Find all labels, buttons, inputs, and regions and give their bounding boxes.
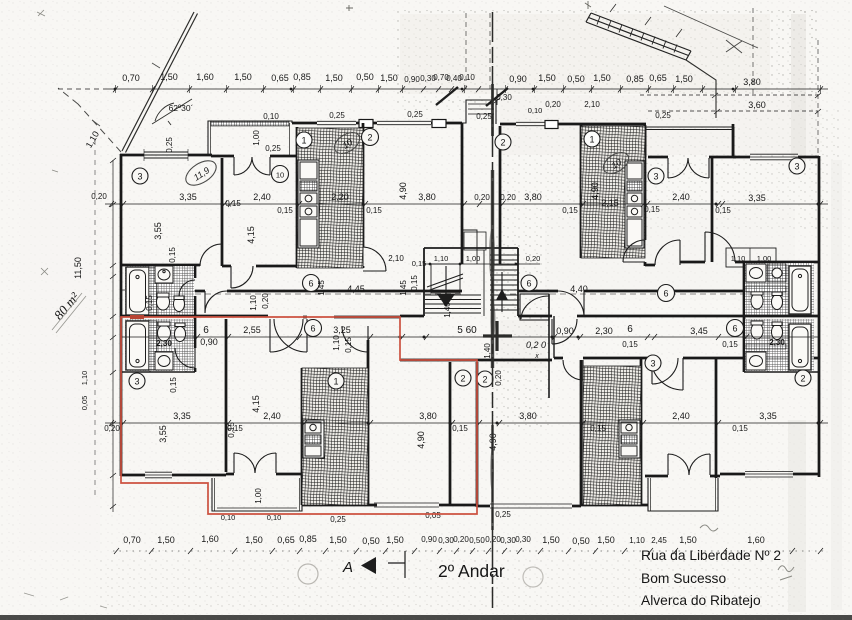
svg-text:2,10: 2,10 xyxy=(388,254,404,263)
svg-text:2,40: 2,40 xyxy=(672,192,690,202)
svg-text:1,10: 1,10 xyxy=(731,254,746,263)
svg-text:0,10: 0,10 xyxy=(528,106,543,115)
svg-text:2,30: 2,30 xyxy=(156,339,172,348)
svg-text:1,45: 1,45 xyxy=(399,280,408,296)
svg-text:3: 3 xyxy=(650,359,655,369)
svg-text:1,50: 1,50 xyxy=(380,73,398,83)
svg-text:1,50: 1,50 xyxy=(234,72,252,82)
svg-text:0,20: 0,20 xyxy=(474,193,490,202)
svg-text:2,30: 2,30 xyxy=(769,338,785,347)
svg-text:0,15: 0,15 xyxy=(277,206,293,215)
svg-text:0,20: 0,20 xyxy=(453,535,469,544)
svg-text:1: 1 xyxy=(333,377,338,387)
svg-text:0,90: 0,90 xyxy=(200,337,218,347)
svg-text:6: 6 xyxy=(310,324,315,334)
svg-text:0,15: 0,15 xyxy=(732,424,748,433)
svg-text:1,50: 1,50 xyxy=(538,73,556,83)
svg-text:3,25: 3,25 xyxy=(333,325,351,335)
svg-text:5 60: 5 60 xyxy=(457,325,477,336)
svg-text:0,15: 0,15 xyxy=(412,259,427,268)
svg-text:0,15: 0,15 xyxy=(169,377,178,393)
svg-text:0,15: 0,15 xyxy=(227,422,236,438)
svg-text:6: 6 xyxy=(308,279,313,289)
svg-text:1,50: 1,50 xyxy=(593,73,611,83)
svg-text:0,15: 0,15 xyxy=(715,206,731,215)
svg-text:0,20: 0,20 xyxy=(104,424,120,433)
svg-text:0,50: 0,50 xyxy=(362,536,380,546)
svg-text:6: 6 xyxy=(627,324,633,335)
svg-text:0,10: 0,10 xyxy=(263,112,279,121)
svg-text:0,15: 0,15 xyxy=(145,295,154,311)
svg-text:0,30: 0,30 xyxy=(438,536,454,545)
svg-text:0,25: 0,25 xyxy=(495,510,511,519)
svg-text:0,65: 0,65 xyxy=(649,73,667,83)
svg-text:1,50: 1,50 xyxy=(675,74,693,84)
svg-text:0,2 0: 0,2 0 xyxy=(526,340,546,350)
svg-text:2,40: 2,40 xyxy=(253,192,271,202)
svg-text:0,20: 0,20 xyxy=(261,293,270,309)
svg-text:1,50: 1,50 xyxy=(160,72,178,82)
svg-text:0,70: 0,70 xyxy=(122,73,140,83)
svg-text:62º30´: 62º30´ xyxy=(169,103,194,113)
svg-text:3,80: 3,80 xyxy=(419,411,437,421)
svg-text:Alverca do Ribatejo: Alverca do Ribatejo xyxy=(641,593,761,608)
svg-text:0,15: 0,15 xyxy=(168,247,177,263)
svg-text:0,85: 0,85 xyxy=(299,534,317,544)
svg-text:1,50: 1,50 xyxy=(325,73,343,83)
svg-text:1,50: 1,50 xyxy=(679,535,697,545)
svg-text:3,55: 3,55 xyxy=(153,222,163,240)
svg-text:0,25: 0,25 xyxy=(265,144,281,153)
svg-text:4,90: 4,90 xyxy=(416,431,426,449)
svg-text:1,10: 1,10 xyxy=(80,371,89,386)
svg-text:6: 6 xyxy=(732,324,737,334)
svg-text:0,25: 0,25 xyxy=(330,515,346,524)
svg-text:4,45: 4,45 xyxy=(347,284,365,294)
svg-text:4,90: 4,90 xyxy=(590,182,600,200)
svg-text:1: 1 xyxy=(589,135,594,145)
svg-text:x: x xyxy=(534,353,539,360)
svg-text:2,15: 2,15 xyxy=(601,198,619,208)
svg-text:0,05: 0,05 xyxy=(425,511,441,520)
svg-text:0,30: 0,30 xyxy=(496,93,512,102)
svg-text:1,10: 1,10 xyxy=(332,335,341,351)
svg-text:Bom Sucesso: Bom Sucesso xyxy=(641,571,726,586)
svg-text:0,20: 0,20 xyxy=(545,100,561,109)
svg-text:1,50: 1,50 xyxy=(542,535,560,545)
svg-text:3,55: 3,55 xyxy=(158,425,168,443)
svg-text:0,05: 0,05 xyxy=(80,396,89,411)
svg-text:1,60: 1,60 xyxy=(201,534,219,544)
svg-text:11,50: 11,50 xyxy=(73,257,83,279)
svg-text:2: 2 xyxy=(367,133,372,143)
svg-text:1,50: 1,50 xyxy=(386,535,404,545)
svg-text:1,60: 1,60 xyxy=(196,72,214,82)
svg-text:6: 6 xyxy=(663,289,668,299)
svg-text:0,90: 0,90 xyxy=(556,326,574,336)
svg-text:3,80: 3,80 xyxy=(418,192,436,202)
svg-text:1,00: 1,00 xyxy=(252,130,261,146)
svg-text:1: 1 xyxy=(301,136,306,146)
svg-text:2: 2 xyxy=(500,138,505,148)
svg-text:A: A xyxy=(342,559,353,576)
svg-text:1,00: 1,00 xyxy=(254,488,263,504)
svg-text:2,10: 2,10 xyxy=(584,100,600,109)
svg-text:1,50: 1,50 xyxy=(329,535,347,545)
svg-text:3: 3 xyxy=(794,162,799,172)
svg-text:1,40: 1,40 xyxy=(443,302,452,318)
svg-text:0,15: 0,15 xyxy=(225,199,241,208)
svg-text:3: 3 xyxy=(137,172,142,182)
svg-text:0,90: 0,90 xyxy=(404,75,420,84)
svg-text:0,10: 0,10 xyxy=(459,73,475,82)
svg-text:0,90: 0,90 xyxy=(421,535,437,544)
svg-text:2: 2 xyxy=(482,375,487,385)
svg-text:1,60: 1,60 xyxy=(747,535,765,545)
svg-text:4,40: 4,40 xyxy=(570,284,588,294)
svg-text:1,10: 1,10 xyxy=(249,295,258,311)
svg-text:Rua da Liberdade Nº 2: Rua da Liberdade Nº 2 xyxy=(641,548,781,563)
svg-text:0,15: 0,15 xyxy=(622,340,638,349)
svg-text:0,85: 0,85 xyxy=(293,72,311,82)
svg-text:2: 2 xyxy=(460,374,465,384)
svg-text:0,20: 0,20 xyxy=(494,370,503,386)
svg-text:0,20: 0,20 xyxy=(500,193,516,202)
svg-text:1,40: 1,40 xyxy=(483,343,492,359)
svg-text:1,00: 1,00 xyxy=(757,254,772,263)
svg-text:2,40: 2,40 xyxy=(672,411,690,421)
svg-text:1,45: 1,45 xyxy=(317,280,326,296)
svg-text:0,20: 0,20 xyxy=(485,535,501,544)
svg-text:0,25: 0,25 xyxy=(329,111,345,120)
svg-text:2,30: 2,30 xyxy=(595,326,613,336)
svg-text:3: 3 xyxy=(653,172,658,182)
svg-text:0,15: 0,15 xyxy=(562,206,578,215)
svg-text:0,50: 0,50 xyxy=(572,536,590,546)
svg-text:0,25: 0,25 xyxy=(476,112,492,121)
svg-text:0,20: 0,20 xyxy=(91,192,107,201)
svg-text:3,35: 3,35 xyxy=(748,193,766,203)
svg-text:3,80: 3,80 xyxy=(743,77,761,87)
svg-text:4,90: 4,90 xyxy=(398,182,408,200)
svg-text:0,50: 0,50 xyxy=(567,74,585,84)
svg-text:0,90: 0,90 xyxy=(509,74,527,84)
svg-text:0,15: 0,15 xyxy=(344,337,353,353)
svg-text:1,50: 1,50 xyxy=(245,535,263,545)
svg-text:3,35: 3,35 xyxy=(179,192,197,202)
svg-text:4,15: 4,15 xyxy=(251,395,261,413)
svg-text:0,15: 0,15 xyxy=(644,205,660,214)
svg-text:0,65: 0,65 xyxy=(277,535,295,545)
svg-text:3,35: 3,35 xyxy=(759,411,777,421)
svg-text:0,15: 0,15 xyxy=(452,424,468,433)
svg-text:0,15: 0,15 xyxy=(590,424,606,433)
svg-text:6: 6 xyxy=(526,279,531,289)
svg-text:0,50: 0,50 xyxy=(356,72,374,82)
svg-text:0,85: 0,85 xyxy=(626,74,644,84)
svg-text:0,15: 0,15 xyxy=(410,275,419,291)
svg-text:2,45: 2,45 xyxy=(651,536,667,545)
svg-text:1,00: 1,00 xyxy=(466,254,481,263)
svg-text:3,80: 3,80 xyxy=(524,192,542,202)
svg-text:0,30: 0,30 xyxy=(515,535,531,544)
svg-text:2,20: 2,20 xyxy=(331,192,349,202)
svg-text:3,45: 3,45 xyxy=(690,326,708,336)
svg-text:0,65: 0,65 xyxy=(271,73,289,83)
svg-text:3: 3 xyxy=(134,377,139,387)
svg-text:0,50: 0,50 xyxy=(469,536,485,545)
svg-text:0,20: 0,20 xyxy=(526,254,541,263)
svg-text:0,15: 0,15 xyxy=(366,206,382,215)
svg-text:2,55: 2,55 xyxy=(243,325,261,335)
svg-text:0,25: 0,25 xyxy=(655,111,671,120)
svg-text:1,10: 1,10 xyxy=(629,536,645,545)
svg-text:0,15: 0,15 xyxy=(722,340,738,349)
svg-text:10: 10 xyxy=(276,171,284,180)
svg-text:3,60: 3,60 xyxy=(748,100,766,110)
svg-text:6: 6 xyxy=(203,325,209,336)
svg-text:0,25: 0,25 xyxy=(165,137,174,153)
svg-text:0,25: 0,25 xyxy=(407,110,423,119)
svg-text:1,50: 1,50 xyxy=(597,535,615,545)
svg-text:3,35: 3,35 xyxy=(173,411,191,421)
svg-text:0,70: 0,70 xyxy=(123,535,141,545)
svg-text:1,10: 1,10 xyxy=(434,254,449,263)
svg-text:1,50: 1,50 xyxy=(157,535,175,545)
svg-text:2,40: 2,40 xyxy=(263,411,281,421)
svg-text:4,15: 4,15 xyxy=(246,226,256,244)
svg-text:3,80: 3,80 xyxy=(519,411,537,421)
svg-text:2: 2 xyxy=(800,374,805,384)
svg-text:0,30: 0,30 xyxy=(500,536,516,545)
svg-text:2º Andar: 2º Andar xyxy=(438,561,505,581)
